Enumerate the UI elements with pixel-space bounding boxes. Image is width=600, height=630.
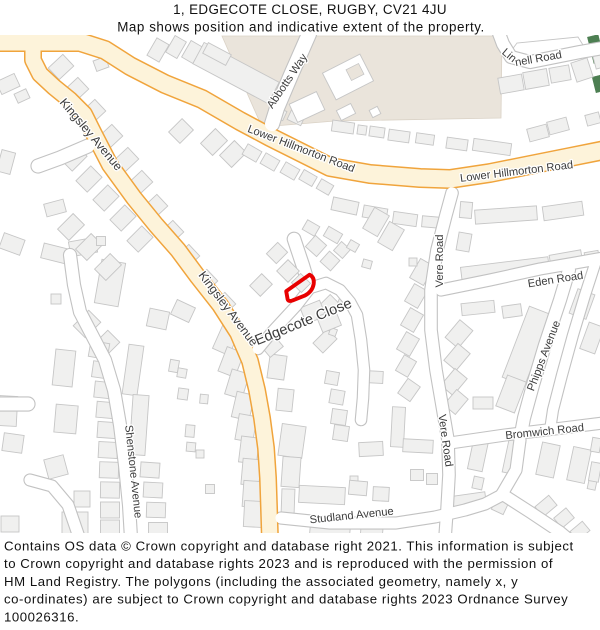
svg-text:HM Land Registry. The polygons: HM Land Registry. The polygons (includin… — [4, 574, 518, 589]
svg-text:1, EDGECOTE CLOSE, RUGBY, CV21: 1, EDGECOTE CLOSE, RUGBY, CV21 4JU — [173, 2, 447, 17]
svg-text:to Crown copyright and databas: to Crown copyright and database rights 2… — [4, 556, 553, 571]
svg-text:Vere Road: Vere Road — [434, 235, 446, 288]
svg-text:Contains OS data © Crown copyr: Contains OS data © Crown copyright and d… — [4, 539, 574, 554]
svg-text:Map shows position and indicat: Map shows position and indicative extent… — [117, 20, 485, 35]
svg-text:co-ordinates) are subject to C: co-ordinates) are subject to Crown copyr… — [4, 592, 568, 607]
svg-text:100026316.: 100026316. — [4, 609, 79, 624]
